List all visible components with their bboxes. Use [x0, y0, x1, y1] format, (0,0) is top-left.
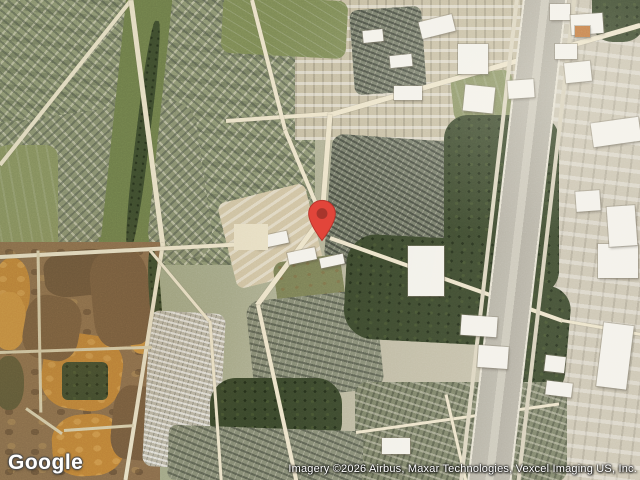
pin-glyph	[307, 199, 337, 242]
building-roof	[362, 29, 383, 43]
building-roof	[460, 315, 497, 337]
building-roof	[408, 246, 444, 296]
building-roof	[591, 117, 640, 147]
building-roof	[418, 14, 455, 39]
building-roof	[234, 224, 268, 250]
map-pin-icon[interactable]	[307, 199, 337, 242]
building-roof	[575, 190, 600, 212]
imagery-attribution: Imagery ©2026 Airbus, Maxar Technologies…	[288, 463, 637, 475]
building-roof	[575, 26, 590, 37]
building-roof	[394, 86, 422, 100]
satellite-map-viewport[interactable]: Google Imagery ©2026 Airbus, Maxar Techn…	[0, 0, 640, 480]
building-roof	[287, 247, 317, 265]
building-roof	[477, 345, 508, 369]
building-roof	[596, 322, 634, 389]
building-roof	[319, 254, 345, 269]
building-roof	[463, 85, 496, 114]
building-roof	[544, 355, 566, 373]
building-roof	[598, 244, 638, 278]
building-roof	[545, 380, 573, 397]
building-roof	[458, 44, 488, 74]
building-roof	[507, 79, 534, 99]
google-logo[interactable]: Google	[8, 451, 83, 475]
building-roof	[382, 438, 410, 454]
building-roof	[607, 205, 638, 247]
building-roof	[550, 4, 570, 20]
building-roof	[555, 44, 577, 59]
building-roof	[389, 54, 412, 68]
building-roof	[564, 61, 592, 84]
